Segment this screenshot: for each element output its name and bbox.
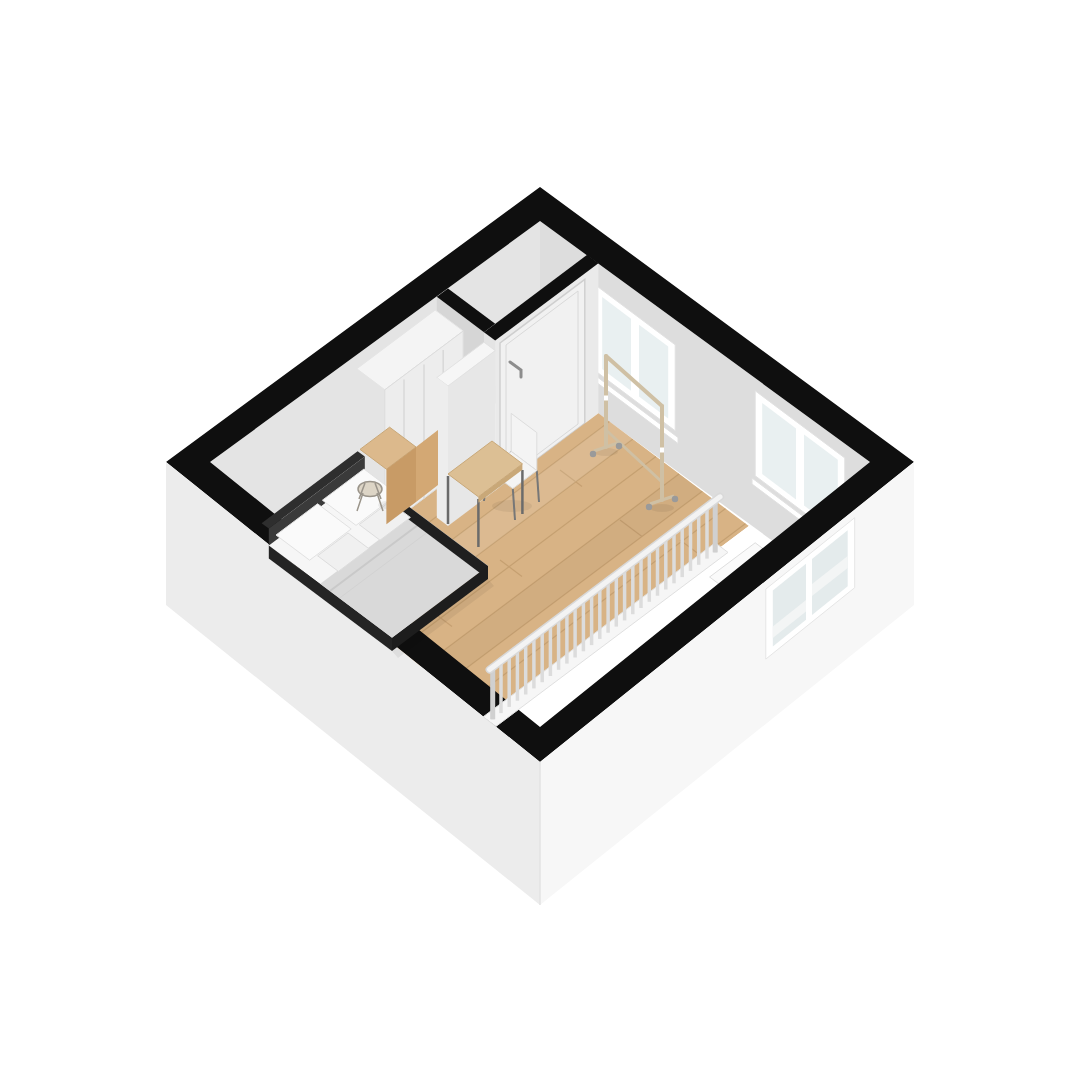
rack-shadow: [650, 504, 674, 512]
divider-end: [437, 378, 448, 526]
floorplan-canvas: [0, 0, 1080, 1080]
chair-shadow: [492, 500, 532, 512]
stool-seat: [358, 482, 382, 497]
floorplan-3d-render: [0, 0, 1080, 1080]
